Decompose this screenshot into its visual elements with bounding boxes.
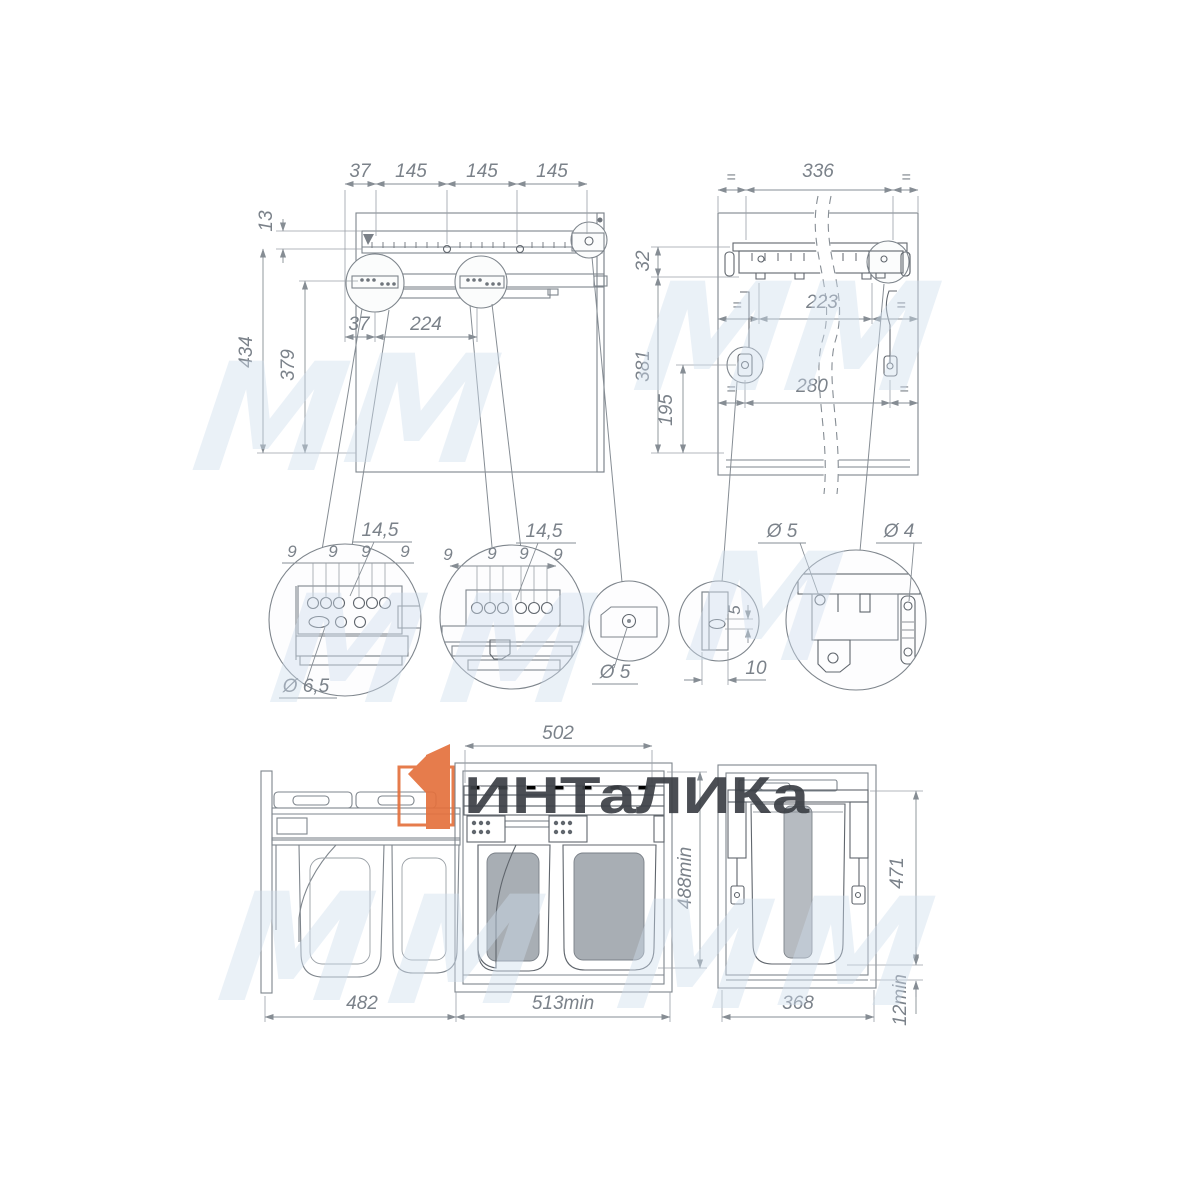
watermark-glyph: М — [335, 323, 509, 498]
brand-watermark: ИНТаЛИКа — [399, 744, 810, 829]
watermark-glyph: М — [626, 251, 800, 426]
watermark-glyph: М — [184, 331, 358, 506]
watermark-glyph: М — [379, 864, 553, 1039]
dim-b-9-4: 9 — [553, 545, 563, 564]
brand-name-watermark: ИНТаЛИКа — [464, 767, 810, 825]
dim-back-336: 336 — [802, 161, 834, 182]
dim-e-dia-4: Ø 4 — [883, 521, 915, 542]
dim-front-145-1: 145 — [395, 161, 427, 182]
dim-a-9-1: 9 — [287, 542, 297, 561]
dim-b-9-2: 9 — [487, 544, 497, 563]
watermark-glyph: М — [769, 866, 943, 1041]
dim-front-145-2: 145 — [466, 161, 498, 182]
watermark-glyph: М — [776, 251, 950, 426]
front-detail-circle-left — [346, 254, 404, 312]
dim-c-dia-5: Ø 5 — [599, 662, 631, 683]
dim-front-13: 13 — [256, 210, 277, 232]
detail-circle-c: Ø 5 — [589, 581, 669, 684]
front-detail-circle-right — [571, 222, 607, 258]
watermark-glyph: М — [432, 563, 606, 738]
brand-logo — [399, 744, 453, 829]
dim-front-145-3: 145 — [536, 161, 568, 182]
dim-a-14-5: 14,5 — [362, 520, 399, 541]
dim-b-9-1: 9 — [443, 545, 453, 564]
front-detail-circle-center — [455, 256, 507, 308]
brand-logo-icon — [426, 744, 450, 829]
watermark-glyph: М — [210, 861, 384, 1036]
dim-a-9-3: 9 — [361, 542, 371, 561]
dim-b-9-3: 9 — [519, 544, 529, 563]
watermark-glyph: М — [678, 521, 852, 696]
watermark-glyph: М — [609, 869, 783, 1044]
dim-a-9-4: 9 — [400, 542, 410, 561]
dim-bottom-513min: 513min — [532, 993, 594, 1014]
dim-front-37-top: 37 — [349, 161, 372, 182]
dim-back-eq1: = — [726, 169, 735, 186]
assembly-drawing: 37 145 145 145 13 434 379 37 224 — [0, 0, 1200, 1200]
technical-drawing-page: 37 145 145 145 13 434 379 37 224 — [0, 0, 1200, 1200]
dim-back-eq2: = — [901, 169, 910, 186]
dim-a-9-2: 9 — [328, 542, 338, 561]
watermark-glyph: М — [262, 563, 436, 738]
dim-b-14-5: 14,5 — [526, 521, 563, 542]
